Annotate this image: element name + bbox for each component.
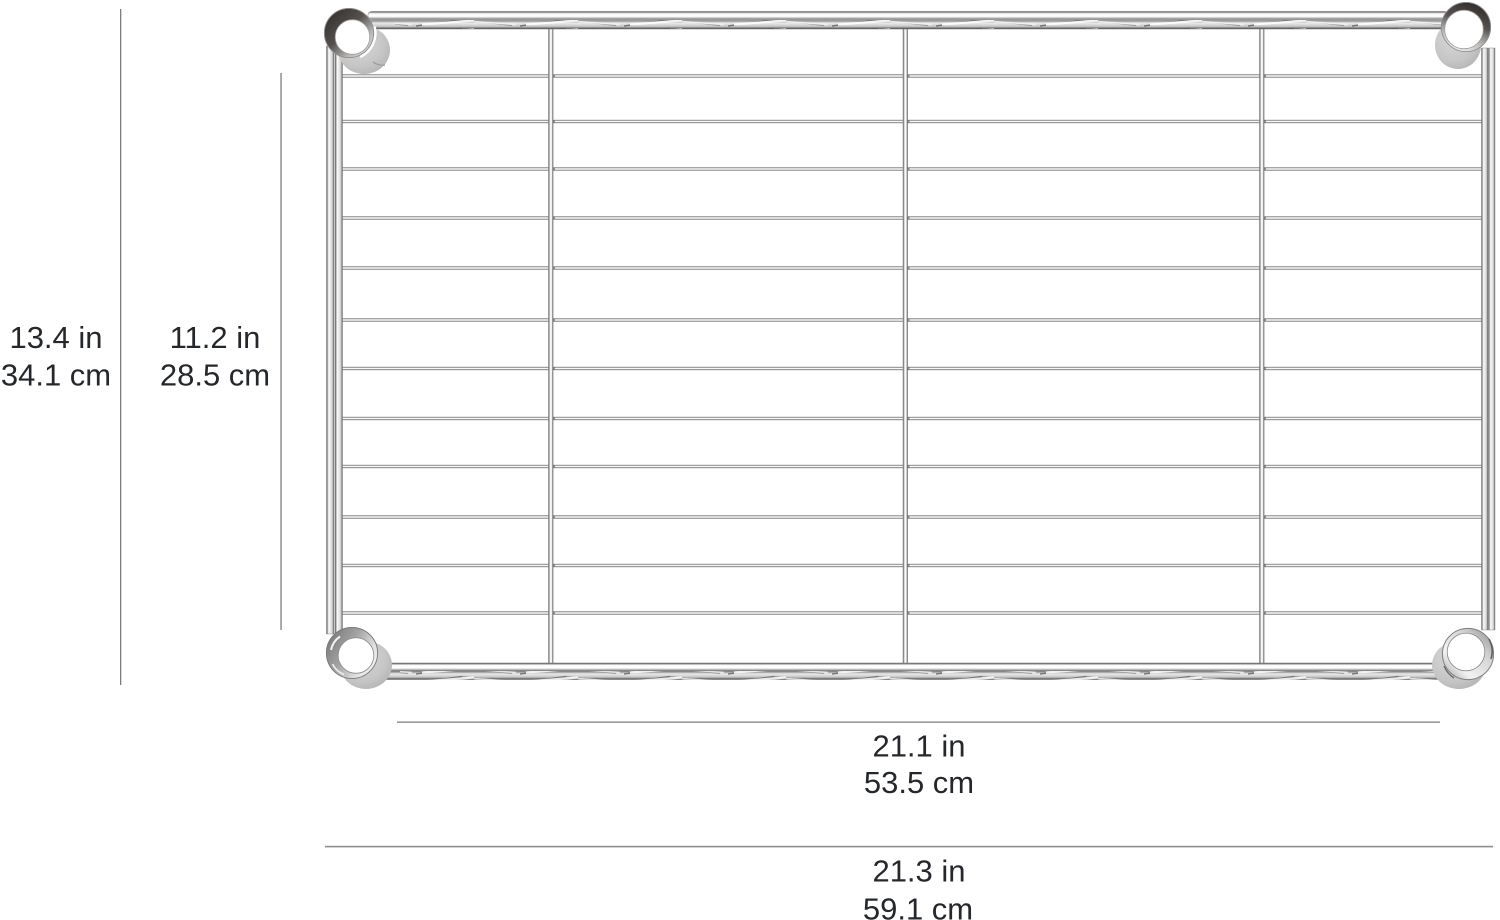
svg-text:21.3 in: 21.3 in [872, 854, 965, 889]
svg-text:34.1 cm: 34.1 cm [1, 357, 111, 392]
svg-text:59.1 cm: 59.1 cm [863, 891, 973, 920]
svg-text:11.2 in: 11.2 in [170, 320, 261, 355]
svg-text:21.1 in: 21.1 in [872, 729, 965, 764]
svg-text:13.4 in: 13.4 in [9, 320, 102, 355]
svg-text:53.5 cm: 53.5 cm [864, 765, 974, 800]
svg-text:28.5 cm: 28.5 cm [160, 357, 270, 392]
